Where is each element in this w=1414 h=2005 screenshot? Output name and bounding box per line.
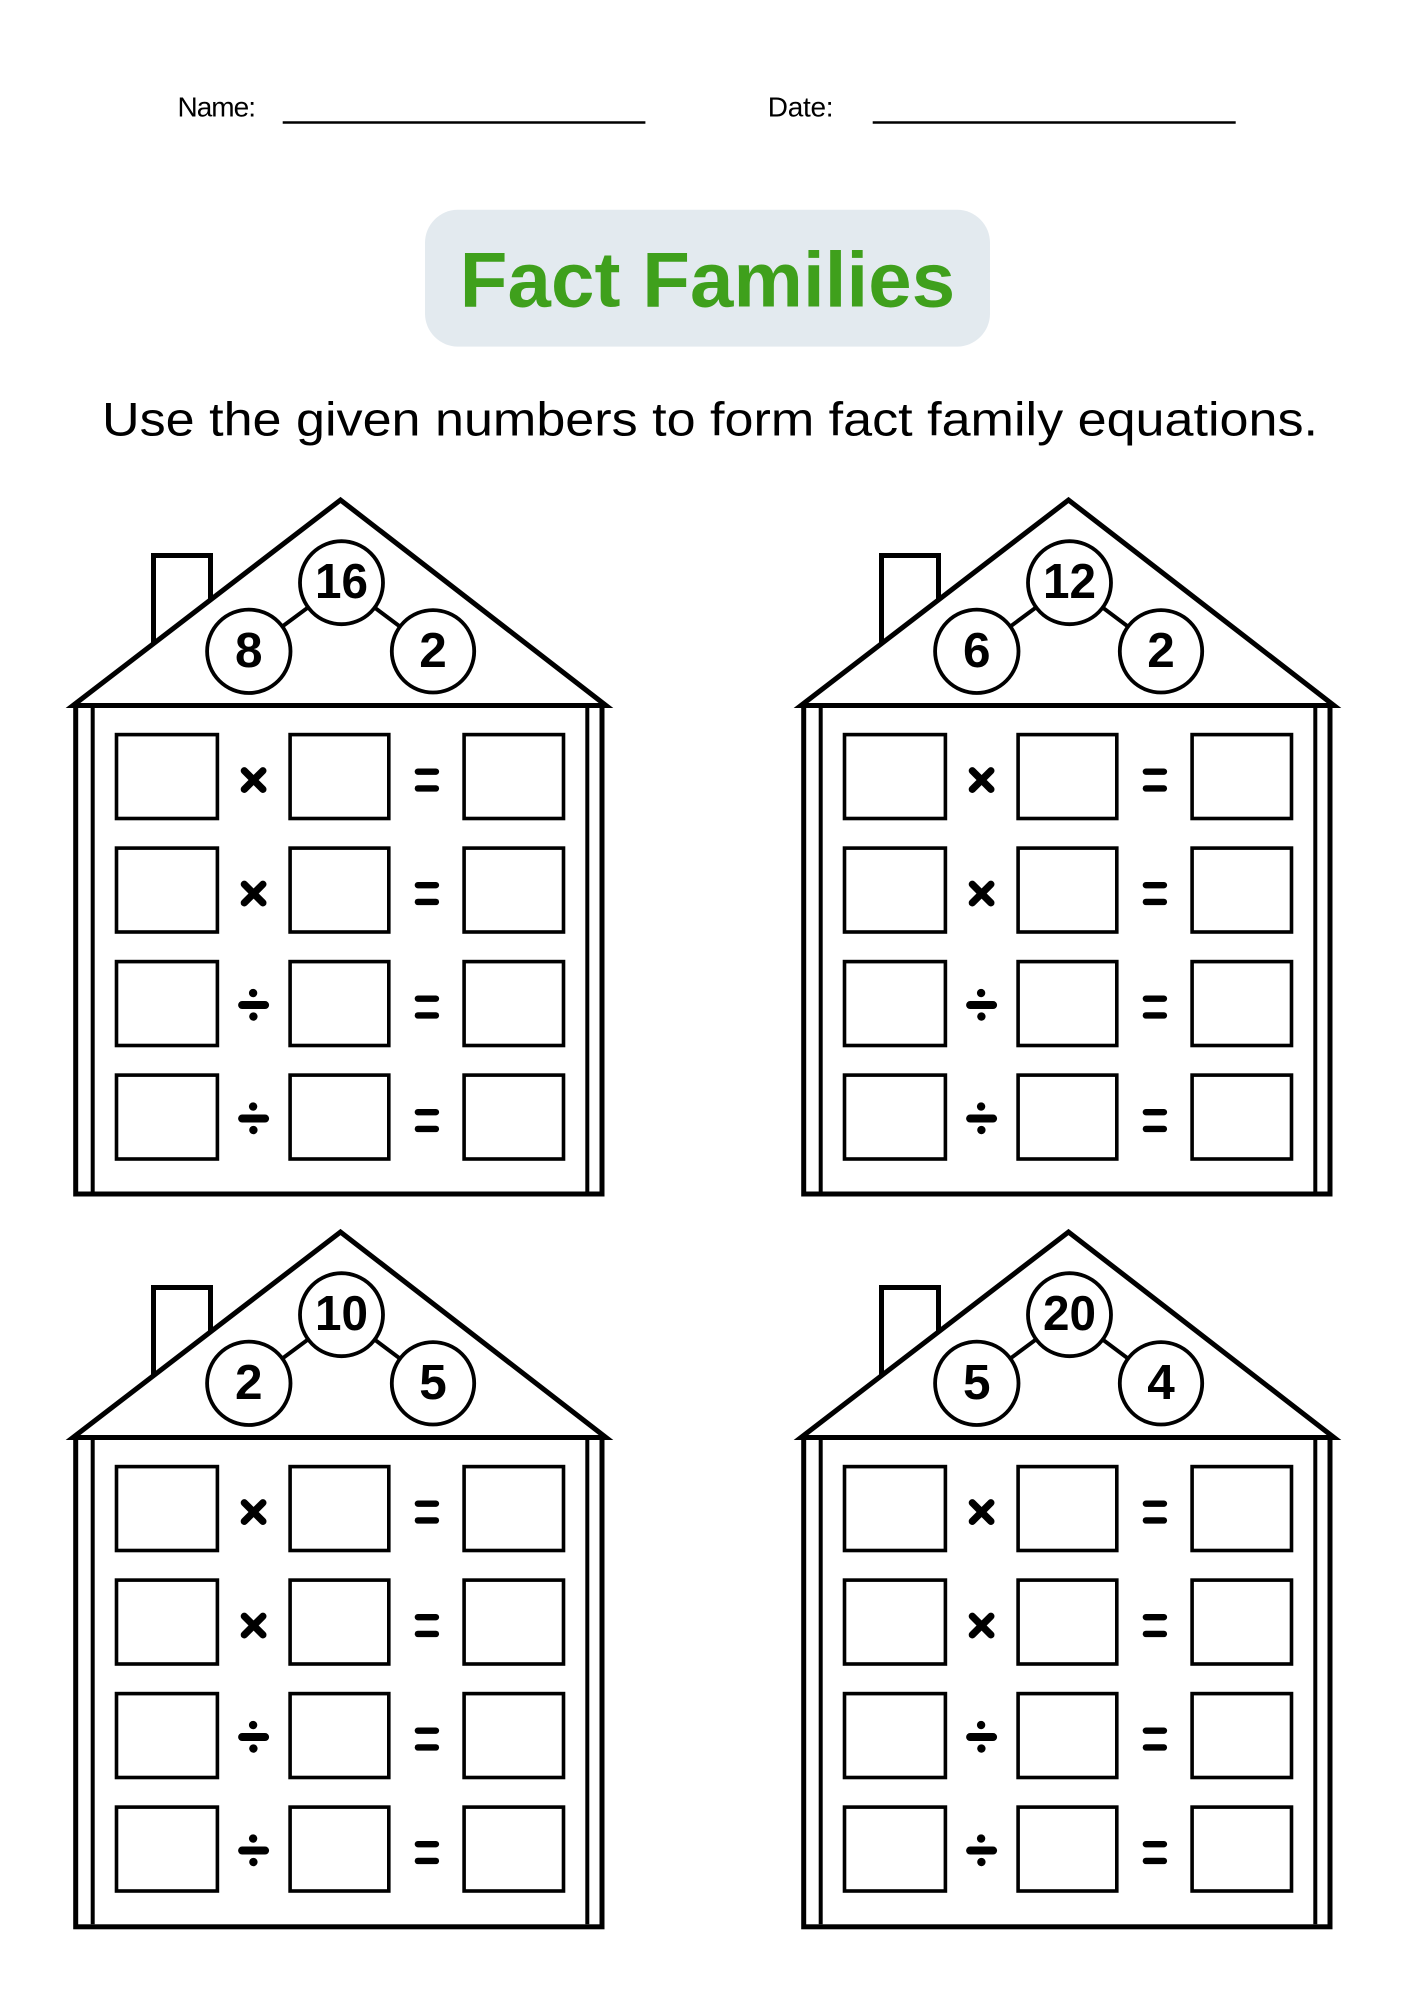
svg-text:6: 6 [963,623,991,678]
svg-text:10: 10 [315,1286,368,1341]
svg-text:8: 8 [235,623,263,678]
svg-text:12: 12 [1043,554,1096,609]
svg-text:Use the given numbers to form: Use the given numbers to form fact famil… [102,393,1318,446]
svg-text:Fact Families: Fact Families [460,235,956,323]
svg-text:16: 16 [315,554,368,609]
svg-text:5: 5 [419,1355,447,1410]
svg-text:20: 20 [1043,1286,1096,1341]
svg-text:2: 2 [419,623,447,678]
svg-text:2: 2 [1147,623,1175,678]
svg-text:Date:: Date: [768,92,833,123]
svg-text:4: 4 [1147,1355,1175,1410]
svg-text:Name:: Name: [178,92,255,123]
svg-text:2: 2 [235,1355,263,1410]
svg-text:5: 5 [963,1355,991,1410]
